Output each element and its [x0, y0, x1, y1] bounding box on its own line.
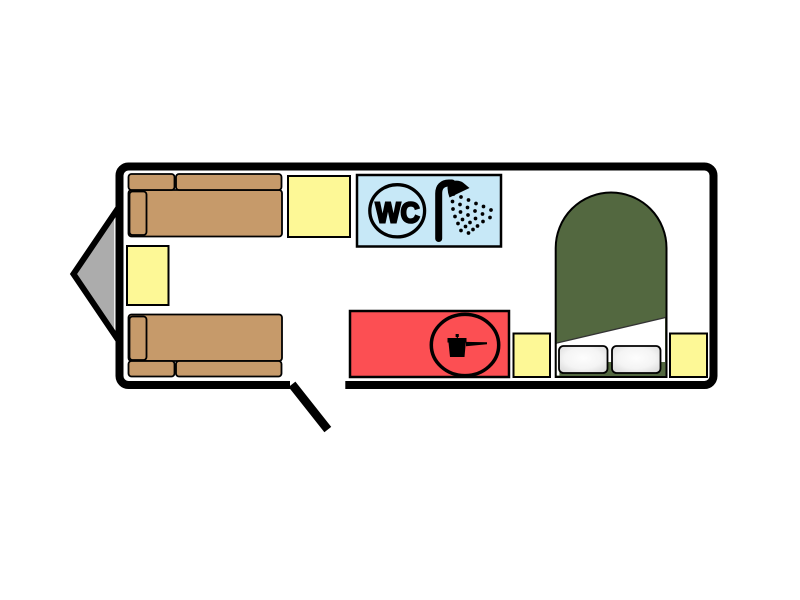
svg-text:WC: WC — [375, 197, 420, 229]
